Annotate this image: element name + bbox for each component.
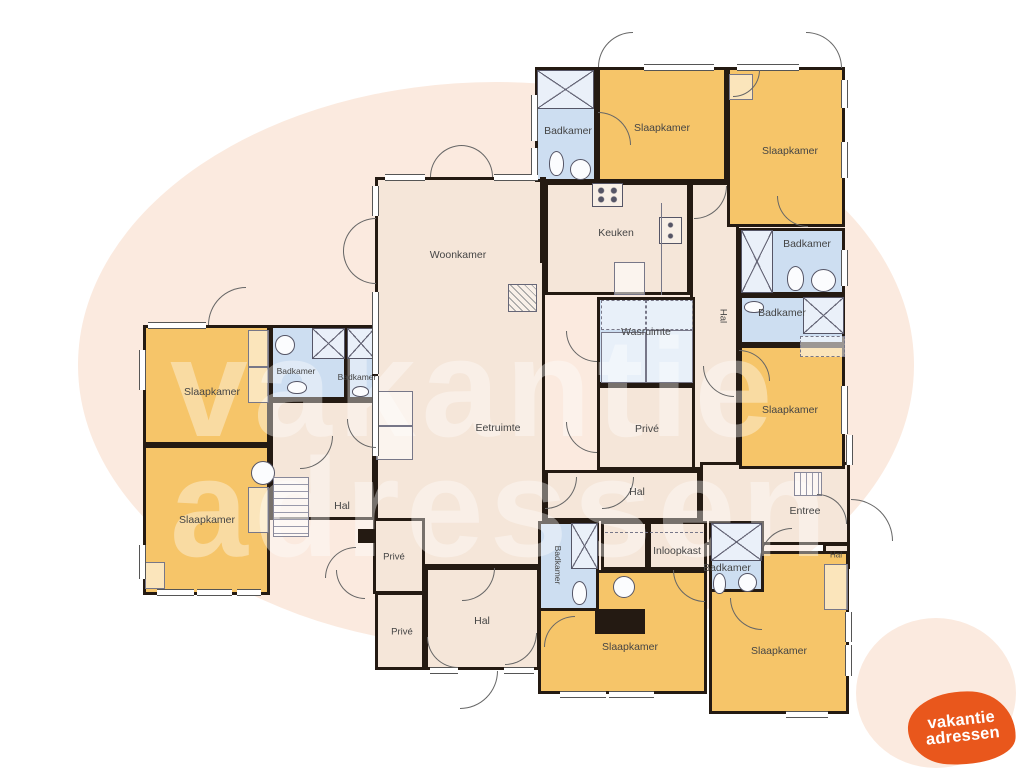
label-slaapkamer-west-2: Slaapkamer: [179, 514, 235, 526]
label-badkamer-east-2: Badkamer: [758, 307, 806, 319]
toilet-icon: [352, 386, 369, 397]
shower-icon: [711, 523, 762, 561]
toilet-icon: [549, 151, 564, 176]
window: [504, 667, 534, 674]
window: [845, 612, 852, 642]
label-woonkamer: Woonkamer: [430, 249, 486, 261]
window: [841, 386, 848, 434]
shower-icon: [803, 297, 844, 334]
closet: [824, 564, 848, 610]
label-wasruimte: Wasruimte: [621, 326, 671, 338]
shower-icon: [741, 230, 773, 293]
window: [148, 322, 206, 329]
door-arc: [806, 32, 842, 68]
shower-icon: [571, 523, 598, 569]
sink-icon: [811, 269, 836, 292]
label-slaapkamer-west-1: Slaapkamer: [184, 386, 240, 398]
stove-icon: [592, 183, 623, 207]
closet: [248, 367, 269, 403]
label-prive-lower: Privé: [391, 627, 413, 638]
label-slaapkamer-south-1: Slaapkamer: [602, 641, 658, 653]
door-arc: [851, 499, 893, 541]
label-badkamer-west-1: Badkamer: [277, 366, 316, 376]
window: [841, 250, 848, 286]
closet: [248, 487, 269, 533]
window: [385, 174, 425, 181]
window: [237, 589, 261, 596]
door-arc: [598, 32, 633, 67]
window: [531, 148, 538, 175]
sink-icon: [275, 335, 295, 355]
label-badkamer-south-rotated: Badkamer: [553, 546, 563, 585]
label-badkamer-west-2: Badkamer: [338, 372, 377, 382]
window: [644, 64, 714, 71]
counter-line: [661, 203, 662, 295]
logo-text: vakantie adressen: [923, 708, 1000, 748]
window: [531, 95, 538, 141]
label-inloopkast: Inloopkast: [653, 545, 701, 557]
label-badkamer-south-center: Badkamer: [703, 562, 751, 574]
window: [430, 667, 458, 674]
door-arc: [460, 671, 498, 709]
label-entree: Entree: [790, 505, 821, 517]
kitchen-island: [614, 262, 645, 295]
sink-icon: [738, 573, 757, 592]
window: [841, 80, 848, 108]
shower-icon: [347, 328, 375, 359]
stairs-icon: [273, 477, 309, 537]
label-badkamer-top: Badkamer: [544, 125, 592, 137]
label-keuken: Keuken: [598, 227, 634, 239]
label-slaapkamer-top-left: Slaapkamer: [634, 122, 690, 134]
toilet-icon: [572, 581, 587, 605]
floor-plan: vakantie adressen: [0, 0, 1024, 768]
stairs-icon: [794, 472, 822, 496]
chimney-block: [595, 609, 645, 634]
window: [139, 350, 146, 390]
window: [197, 589, 232, 596]
window: [609, 691, 654, 698]
label-hal-west: Hal: [334, 500, 350, 512]
closet: [248, 330, 269, 367]
sink-icon: [570, 159, 591, 180]
label-hal-mid: Hal: [629, 486, 645, 498]
sink-icon: [251, 461, 275, 485]
shower-icon: [312, 328, 345, 359]
window: [372, 292, 379, 374]
label-eetruimte: Eetruimte: [476, 422, 521, 434]
window: [372, 186, 379, 216]
closet: [376, 426, 413, 460]
sink-icon: [613, 576, 635, 598]
label-hal-corridor: Hal: [718, 309, 729, 323]
window: [786, 711, 828, 718]
label-hal-small: Hal: [830, 551, 842, 560]
window: [139, 545, 146, 579]
wall-stub: [358, 529, 375, 543]
toilet-icon: [287, 381, 307, 394]
window: [845, 645, 852, 676]
window: [494, 174, 538, 181]
wardrobe-dashed: [800, 336, 845, 357]
closet: [376, 391, 413, 426]
toilet-icon: [713, 573, 726, 594]
label-slaapkamer-south-2: Slaapkamer: [751, 645, 807, 657]
closet-rail: [605, 532, 703, 533]
label-prive-mid: Privé: [635, 423, 659, 435]
window: [841, 142, 848, 178]
kitchen-sink-icon: [659, 217, 682, 244]
label-badkamer-east-1: Badkamer: [783, 238, 831, 250]
label-hal-bottom: Hal: [474, 615, 490, 627]
fireplace-hatch: [508, 284, 537, 312]
window: [157, 589, 194, 596]
label-prive-upper: Privé: [383, 552, 405, 563]
closet: [145, 562, 165, 589]
window: [560, 691, 606, 698]
label-slaapkamer-east: Slaapkamer: [762, 404, 818, 416]
toilet-icon: [787, 266, 804, 291]
wall-stub: [540, 177, 546, 263]
shower-icon: [537, 70, 594, 109]
washing-machine-icon: [601, 332, 646, 383]
window: [846, 435, 853, 465]
label-slaapkamer-top-right: Slaapkamer: [762, 145, 818, 157]
